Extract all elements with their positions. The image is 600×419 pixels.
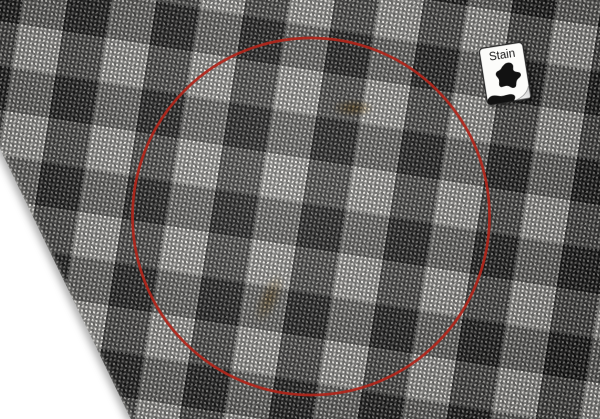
stain-annotation-circle bbox=[133, 38, 490, 395]
photo-canvas: Stain bbox=[0, 0, 600, 419]
stain-label-tag: Stain bbox=[478, 41, 533, 106]
